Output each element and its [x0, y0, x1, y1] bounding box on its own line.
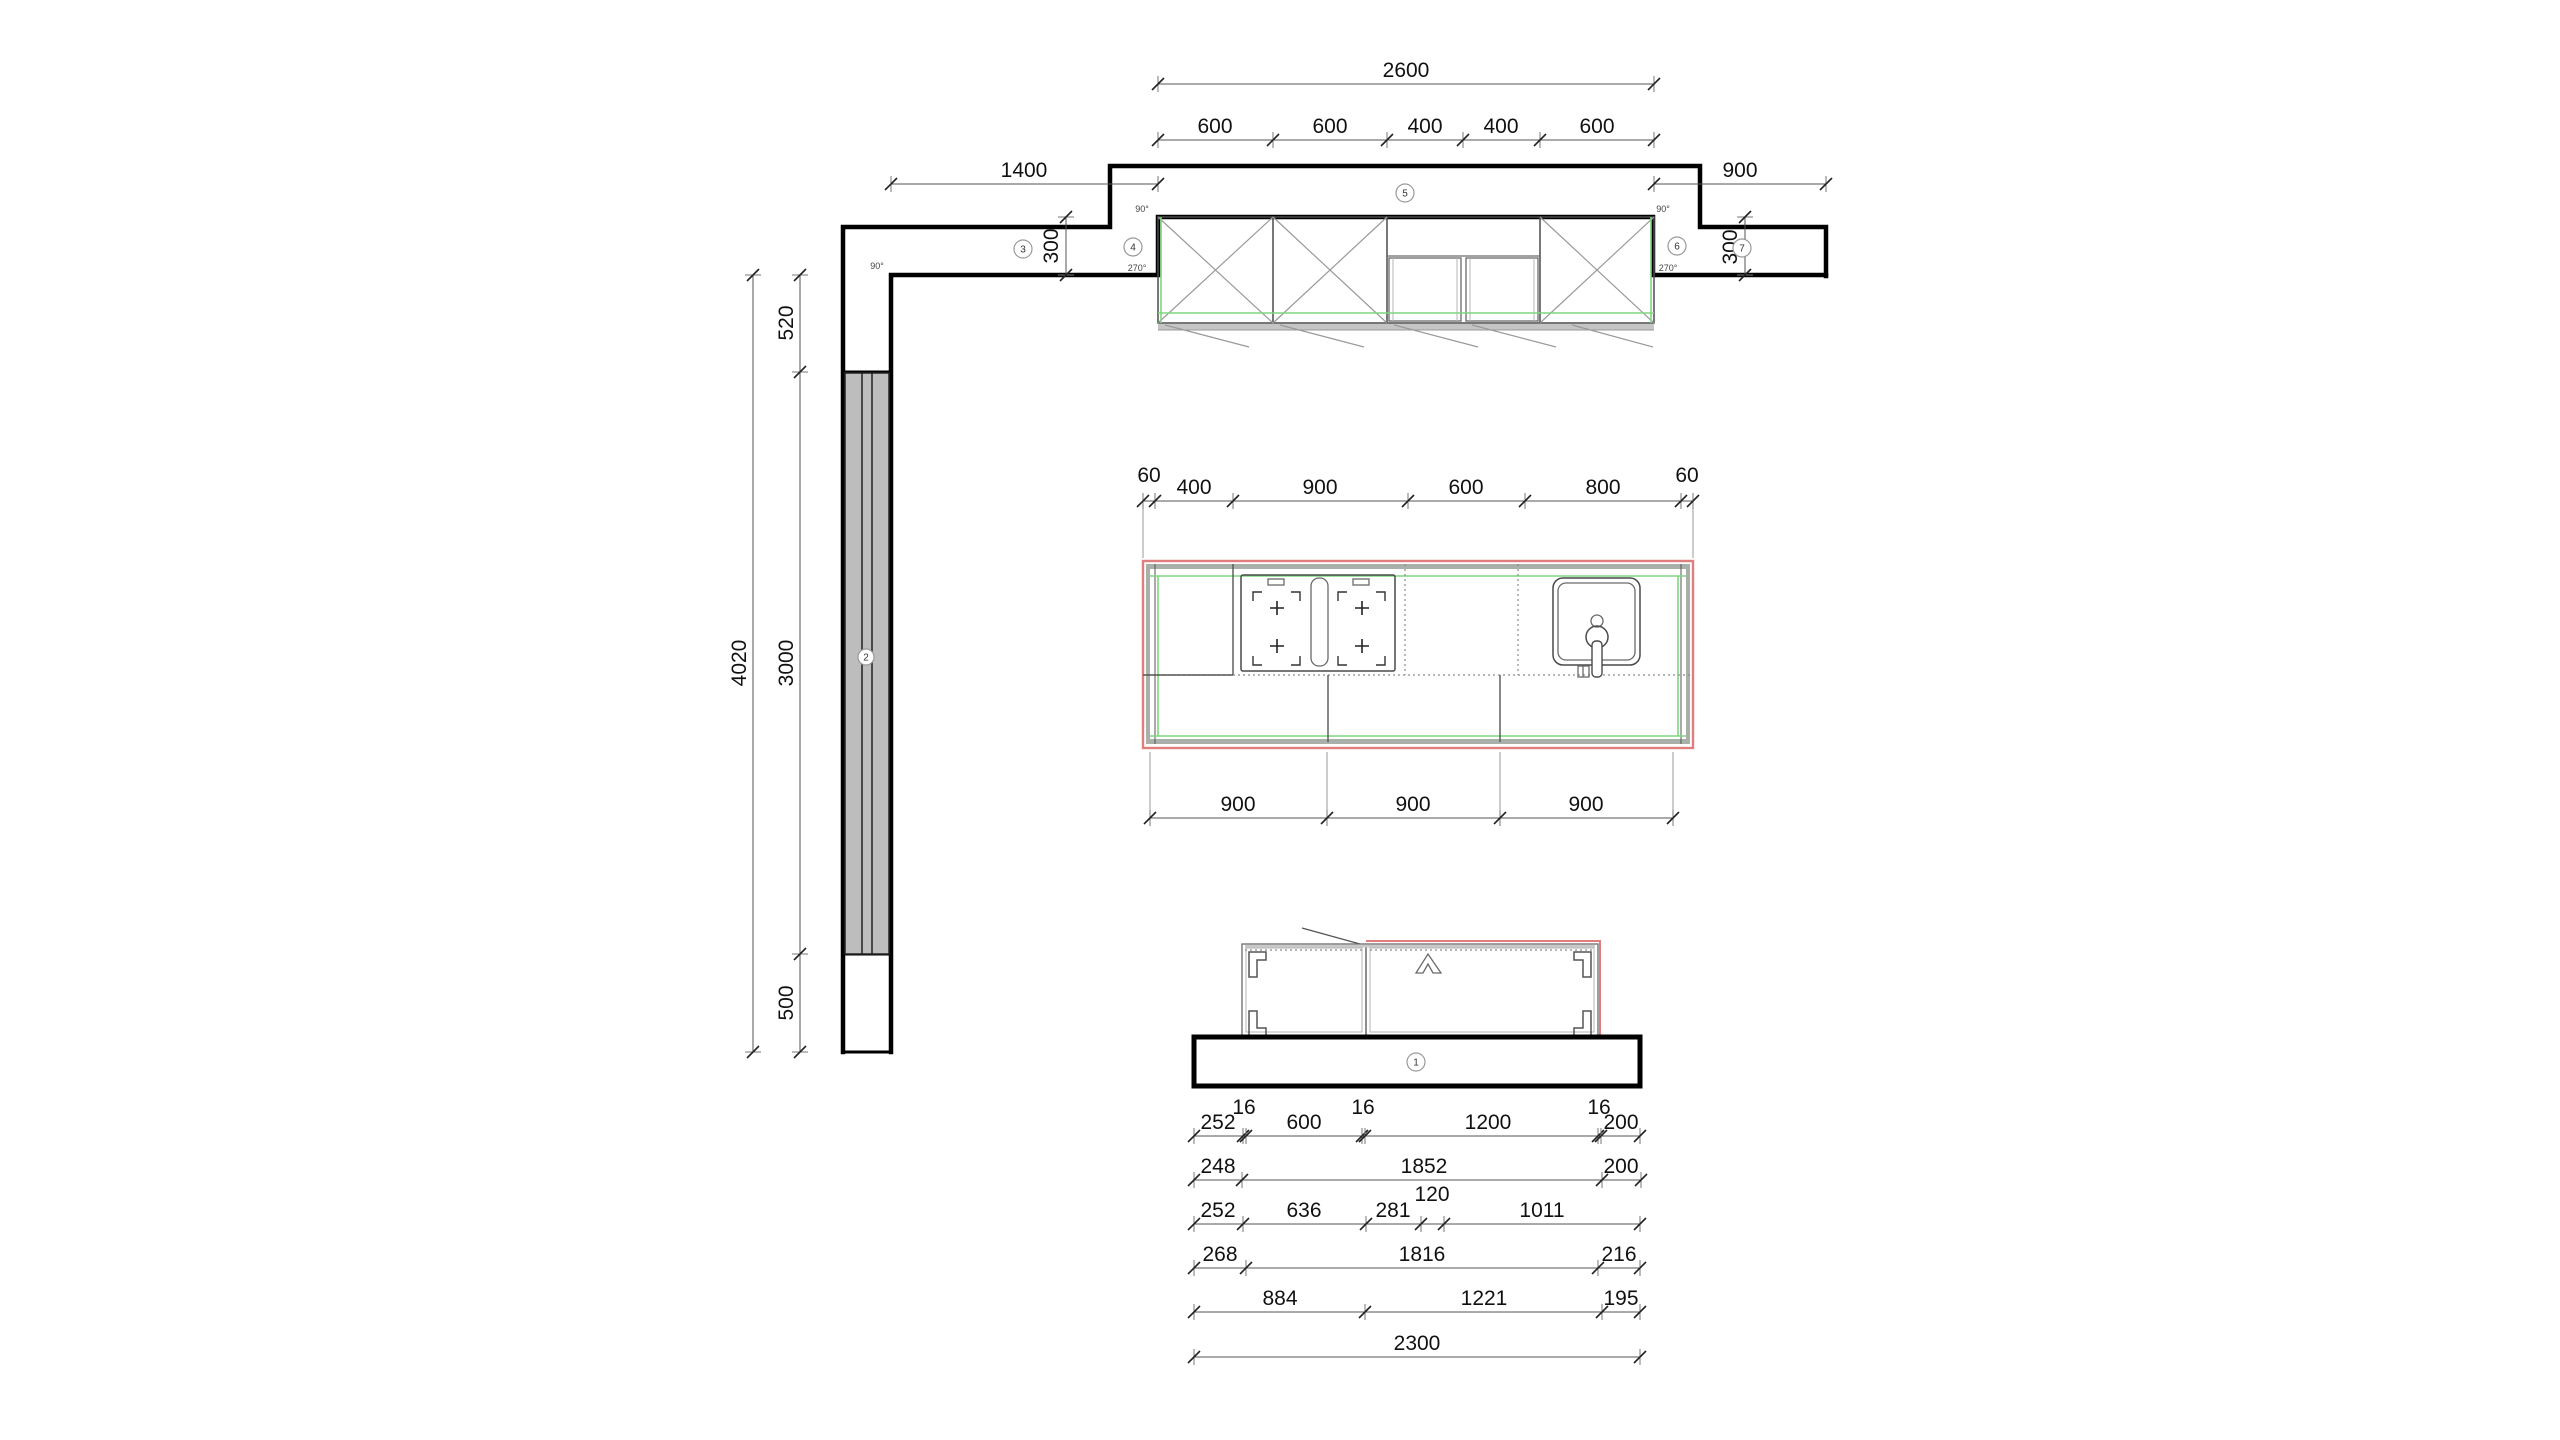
dim-label: 16: [1232, 1096, 1255, 1119]
marker-6: 6: [1668, 237, 1686, 255]
dim-label: 1852: [1401, 1155, 1448, 1178]
dim-label: 2600: [1383, 59, 1430, 82]
svg-text:1: 1: [1413, 1058, 1419, 1069]
dim-label: 1400: [1001, 159, 1048, 182]
dim-label: 600: [1197, 115, 1232, 138]
marker-3: 3: [1014, 240, 1032, 258]
dim-label: 400: [1483, 115, 1518, 138]
dim-label: 216: [1601, 1243, 1636, 1266]
dim-label: 4020: [728, 640, 751, 687]
dim-label: 200: [1603, 1155, 1638, 1178]
dim-label: 600: [1312, 115, 1347, 138]
dim-label: 281: [1375, 1199, 1410, 1222]
svg-text:7: 7: [1739, 244, 1745, 255]
dim-label: 636: [1286, 1199, 1321, 1222]
dim-label: 600: [1448, 476, 1483, 499]
dim-label: 2300: [1394, 1332, 1441, 1355]
dim-label: 600: [1286, 1111, 1321, 1134]
dim-label: 520: [775, 305, 798, 340]
dim-label: 252: [1200, 1199, 1235, 1222]
dim-label: 884: [1262, 1287, 1297, 1310]
dim-label: 400: [1407, 115, 1442, 138]
angle-label: 90°: [870, 261, 884, 271]
angle-label: 270°: [1659, 263, 1678, 273]
dim-label: 900: [1220, 793, 1255, 816]
dim-label: 900: [1395, 793, 1430, 816]
dim-label: 1011: [1519, 1199, 1564, 1222]
dim-label: 1816: [1399, 1243, 1446, 1266]
faucet-spout: [1592, 641, 1602, 677]
dim-label: 400: [1176, 476, 1211, 499]
dim-label: 1200: [1465, 1111, 1512, 1134]
kitchen-plan-drawing: 2600 600 600 400 400 600 1400 900 300 30…: [0, 0, 2560, 1440]
marker-5: 5: [1396, 184, 1414, 202]
dim-label: 248: [1200, 1155, 1235, 1178]
dim-label: 1221: [1461, 1287, 1508, 1310]
marker-4: 4: [1124, 238, 1142, 256]
svg-text:3: 3: [1020, 245, 1026, 256]
dim-label: 16: [1351, 1096, 1374, 1119]
angle-label: 270°: [1128, 263, 1147, 273]
svg-text:6: 6: [1674, 242, 1680, 253]
angle-label: 90°: [1656, 204, 1670, 214]
svg-text:2: 2: [863, 653, 869, 664]
marker-1: 1: [1407, 1053, 1425, 1071]
dim-label: 600: [1579, 115, 1614, 138]
dim-label: 120: [1414, 1183, 1449, 1206]
cad-drawing-canvas: 2600 600 600 400 400 600 1400 900 300 30…: [0, 0, 2560, 1440]
dim-label: 268: [1202, 1243, 1237, 1266]
marker-2: 2: [858, 649, 874, 665]
marker-7: 7: [1733, 239, 1751, 257]
dim-label: 900: [1722, 159, 1757, 182]
svg-text:4: 4: [1130, 243, 1136, 254]
svg-text:5: 5: [1402, 189, 1408, 200]
dim-label: 3000: [775, 640, 798, 687]
dim-label: 900: [1302, 476, 1337, 499]
dim-label: 900: [1568, 793, 1603, 816]
angle-label: 90°: [1135, 204, 1149, 214]
dim-label: 800: [1585, 476, 1620, 499]
dim-label: 300: [1040, 228, 1063, 263]
dim-label: 60: [1137, 464, 1160, 487]
dim-label: 200: [1603, 1111, 1638, 1134]
dim-label: 500: [775, 985, 798, 1020]
dim-label: 60: [1675, 464, 1698, 487]
dim-label: 195: [1603, 1287, 1638, 1310]
dim-label: 252: [1200, 1111, 1235, 1134]
